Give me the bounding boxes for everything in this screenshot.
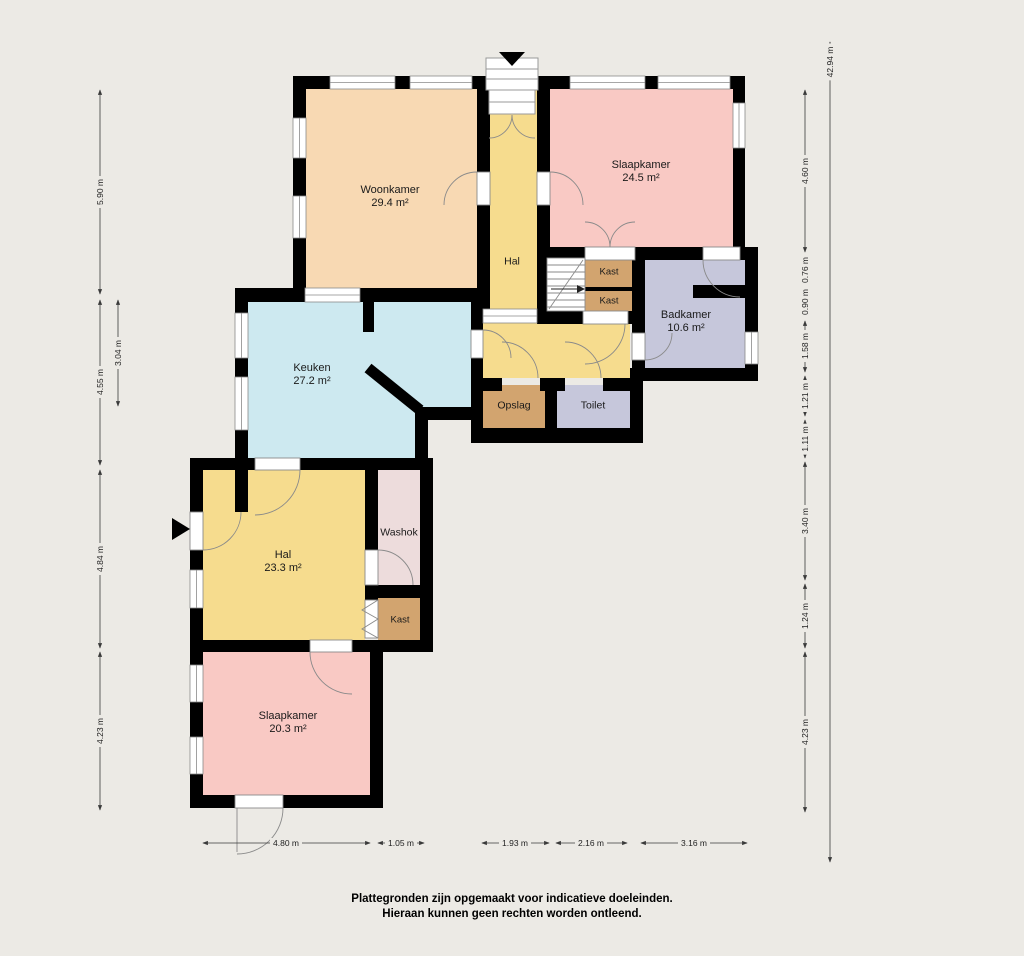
room-label-washok: Washok	[380, 527, 418, 540]
window-slaapkamer1-top-1	[570, 76, 645, 89]
window-keuken-left-2	[235, 377, 248, 430]
room-name: Hal	[264, 549, 301, 562]
room-label-badkamer: Badkamer 10.6 m²	[661, 309, 711, 335]
room-label-hal-beneden: Hal 23.3 m²	[264, 549, 301, 575]
entrance-porch	[486, 58, 538, 114]
window-slaapkamer1-right	[733, 103, 745, 148]
room-label-opslag: Opslag	[497, 400, 530, 413]
window-woonkamer-top-2	[410, 76, 472, 89]
room-name: Kast	[390, 615, 409, 626]
room-label-slaapkamer2: Slaapkamer 20.3 m²	[259, 710, 318, 736]
room-name: Badkamer	[661, 309, 711, 322]
room-area: 29.4 m²	[360, 197, 419, 210]
window-woonkamer-left-1	[293, 118, 306, 158]
room-area: 24.5 m²	[612, 172, 671, 185]
window-keuken-left-1	[235, 313, 248, 358]
dim-right-8: 1.24 m	[800, 600, 810, 632]
window-woonkamer-left-2	[293, 196, 306, 238]
entrance-arrow-left-icon	[172, 518, 190, 540]
stairs-detail	[547, 258, 585, 311]
dim-left-2: 4.55 m	[95, 366, 105, 398]
room-label-toilet: Toilet	[581, 400, 606, 413]
dim-bottom-2: 1.05 m	[385, 838, 417, 848]
room-label-woonkamer: Woonkamer 29.4 m²	[360, 184, 419, 210]
disclaimer-line-2: Hieraan kunnen geen rechten worden ontle…	[0, 907, 1024, 922]
room-label-hal-boven: Hal	[504, 256, 520, 269]
room-label-slaapkamer1: Slaapkamer 24.5 m²	[612, 159, 671, 185]
window-slaapkamer1-top-2	[658, 76, 730, 89]
window-keuken-top	[305, 288, 360, 302]
room-name: Keuken	[293, 362, 330, 375]
room-area: 20.3 m²	[259, 723, 318, 736]
disclaimer-line-1: Plattegronden zijn opgemaakt voor indica…	[0, 892, 1024, 907]
room-name: Opslag	[497, 400, 530, 412]
room-area: 27.2 m²	[293, 375, 330, 388]
dim-bottom-3: 1.93 m	[499, 838, 531, 848]
room-name: Slaapkamer	[259, 710, 318, 723]
room-label-kast-b: Kast	[599, 295, 618, 308]
room-area: 10.6 m²	[661, 322, 711, 335]
room-name: Toilet	[581, 400, 606, 412]
room-name: Washok	[380, 527, 418, 539]
room-name: Kast	[599, 267, 618, 278]
room-keuken-shape	[248, 302, 471, 458]
dim-left-3: 3.04 m	[113, 337, 123, 369]
room-name: Kast	[599, 296, 618, 307]
window-slaapkamer2-left-1	[190, 665, 203, 702]
dim-right-4: 1.58 m	[800, 330, 810, 362]
room-name: Woonkamer	[360, 184, 419, 197]
room-area: 23.3 m²	[264, 562, 301, 575]
dim-right-5: 1.21 m	[800, 380, 810, 412]
dim-right-7: 3.40 m	[800, 505, 810, 537]
room-label-kast-a: Kast	[599, 266, 618, 279]
room-label-keuken: Keuken 27.2 m²	[293, 362, 330, 388]
window-woonkamer-top-1	[330, 76, 395, 89]
dim-bottom-5: 3.16 m	[678, 838, 710, 848]
dim-right-2: 0.76 m	[800, 254, 810, 286]
opening-hal-middenhal	[483, 309, 537, 323]
dim-left-1: 5.90 m	[95, 176, 105, 208]
floorplan-canvas: Woonkamer 29.4 m² Slaapkamer 24.5 m² Hal…	[0, 0, 1024, 956]
dim-left-4: 4.84 m	[95, 543, 105, 575]
window-badkamer-right	[745, 332, 758, 364]
room-name: Hal	[504, 256, 520, 268]
dim-right-3: 0.90 m	[800, 286, 810, 318]
dim-right-6: 1.11 m	[800, 423, 810, 454]
room-name: Slaapkamer	[612, 159, 671, 172]
window-slaapkamer2-left-2	[190, 737, 203, 774]
dim-right-total: 42.94 m	[825, 44, 835, 81]
room-label-kast-c: Kast	[390, 614, 409, 627]
dim-right-9: 4.23 m	[800, 716, 810, 748]
floorplan-svg	[0, 0, 1024, 956]
dim-left-5: 4.23 m	[95, 715, 105, 747]
dim-right-1: 4.60 m	[800, 155, 810, 187]
window-hal-beneden-left	[190, 570, 203, 608]
dim-bottom-4: 2.16 m	[575, 838, 607, 848]
dim-bottom-1: 4.80 m	[270, 838, 302, 848]
disclaimer-text: Plattegronden zijn opgemaakt voor indica…	[0, 892, 1024, 922]
